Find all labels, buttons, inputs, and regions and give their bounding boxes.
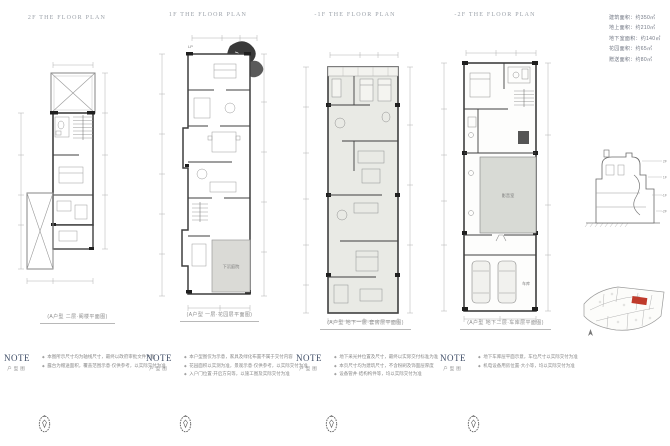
note-title: NOTE: [144, 353, 174, 363]
garage-label: 车库: [522, 280, 530, 286]
laurel-wreath-logo: [325, 414, 338, 433]
laurel-wreath-logo: [179, 414, 192, 433]
area-line: 花园面积：约65㎡: [609, 44, 661, 54]
note-head: NOTE 户型图: [294, 350, 324, 372]
area-line: 地上面积：约210㎡: [609, 23, 661, 33]
note-subtitle: 户型图: [144, 366, 174, 372]
note-subtitle: 户型图: [438, 366, 468, 372]
caption-text: (A户型 一层·花园层平面图): [180, 312, 260, 322]
panel-title-2f: 2F THE FLOOR PLAN: [22, 15, 112, 21]
floor-plan-2f-drawing: [15, 55, 140, 310]
plan-caption-1f: (A户型 一层·花园层平面图): [152, 311, 287, 318]
note-block-b2f: NOTE 户型图 地下车库层平面示意，车位尺寸以实际交付为准 机电设备用房位置·…: [438, 350, 572, 380]
note-item: 本户型图仅为示意，家具及绿化布置不属于交付内容: [184, 353, 308, 362]
note-list: 地下采光井位置及尺寸，最终以实际交付标准为准 本页尺寸均为建筑尺寸，不含粉刷及饰…: [334, 350, 438, 379]
plan-caption-b1f: (A户型 地下一层·套房层平面图): [298, 319, 433, 326]
note-list: 本户型图仅为示意，家具及绿化布置不属于交付内容 花园面积以实测为准，景观示意·仅…: [184, 350, 308, 379]
floor-plan-1f-drawing: LP: [152, 32, 287, 322]
note-item: 机电设备用房位置·大小等，均以实际交付为准: [478, 362, 578, 371]
note-item: 入户门位置·开启方向等，以施工图及实际交付为准: [184, 370, 308, 379]
car-icon: [472, 261, 490, 303]
panel-title-1f: 1F THE FLOOR PLAN: [163, 12, 253, 18]
panel-title-b1f: -1F THE FLOOR PLAN: [310, 12, 400, 18]
note-item: 地下车库层平面示意，车位尺寸以实际交付为准: [478, 353, 578, 362]
note-head: NOTE 户型图: [438, 350, 468, 372]
area-line: 建筑面积：约350㎡: [609, 13, 661, 23]
note-list: 地下车库层平面示意，车位尺寸以实际交付为准 机电设备用房位置·大小等，均以实际交…: [478, 350, 578, 370]
laurel-wreath-logo: [38, 414, 51, 433]
area-line: 地下室面积：约140㎡: [609, 34, 661, 44]
caption-text: (A户型 地下二层·车库层平面图): [460, 320, 551, 330]
note-item: 花园面积以实测为准，景观示意·仅供参考，以实际交付为准: [184, 362, 308, 371]
caption-text: (A户型 二层·阁楼平面图): [40, 314, 114, 324]
section-level-label: 1F: [663, 176, 667, 180]
note-title: NOTE: [438, 353, 468, 363]
av-room-label: 影音室: [502, 192, 515, 199]
floor-plan-b2f-drawing: 影音室 车库: [438, 45, 573, 325]
roof-skylight-x: [51, 73, 95, 113]
floor-body: [326, 67, 400, 313]
roof-terrace-x: [27, 193, 53, 269]
panel-title-b2f: -2F THE FLOOR PLAN: [450, 12, 540, 18]
note-block-1f: NOTE 户型图 本户型图仅为示意，家具及绿化布置不属于交付内容 花园面积以实测…: [144, 350, 292, 380]
section-level-label: 2F: [663, 160, 667, 164]
lp-label: LP: [188, 44, 193, 49]
note-item: 设备管井·结构构件等，均以实际交付为准: [334, 370, 438, 379]
ground-hatch: [585, 223, 628, 227]
area-info-block: 建筑面积：约350㎡ 地上面积：约210㎡ 地下室面积：约140㎡ 花园面积：约…: [609, 13, 661, 65]
caption-text: (A户型 地下一层·套房层平面图): [320, 320, 411, 330]
note-title: NOTE: [294, 353, 324, 363]
note-block-2f: NOTE 户型图 本图所示尺寸均为轴线尺寸，最终以政府审批文件为准 露台为赠送面…: [2, 350, 120, 380]
area-line: 赠送面积：约80㎡: [609, 55, 661, 65]
note-subtitle: 户型图: [294, 366, 324, 372]
section-level-label: -2F: [662, 210, 667, 214]
plan-caption-2f: (A户型 二层·阁楼平面图): [15, 313, 140, 320]
floor-plan-sheet: 2F THE FLOOR PLAN 1F THE FLOOR PLAN -1F …: [0, 0, 670, 446]
note-item: 地下采光井位置及尺寸，最终以实际交付标准为准: [334, 353, 438, 362]
compass-icon: [588, 329, 593, 336]
courtyard-area: 下沉庭院: [212, 240, 250, 292]
note-head: NOTE 户型图: [144, 350, 174, 372]
courtyard-label: 下沉庭院: [223, 263, 241, 270]
floor-body: [50, 111, 95, 250]
note-block-b1f: NOTE 户型图 地下采光井位置及尺寸，最终以实际交付标准为准 本页尺寸均为建筑…: [294, 350, 436, 380]
building-section-drawing: 2F 1F -1F -2F: [582, 145, 668, 240]
site-location-map: [578, 280, 670, 342]
laurel-wreath-logo: [467, 414, 480, 433]
car-icon: [498, 261, 516, 303]
note-head: NOTE 户型图: [2, 350, 32, 372]
note-item: 本页尺寸均为建筑尺寸，不含粉刷及饰面层厚度: [334, 362, 438, 371]
note-title: NOTE: [2, 353, 32, 363]
plan-caption-b2f: (A户型 地下二层·车库层平面图): [438, 319, 573, 326]
floor-plan-b1f-drawing: [298, 45, 433, 325]
note-subtitle: 户型图: [2, 366, 32, 372]
section-level-label: -1F: [662, 194, 667, 198]
av-room: 影音室: [480, 157, 536, 233]
